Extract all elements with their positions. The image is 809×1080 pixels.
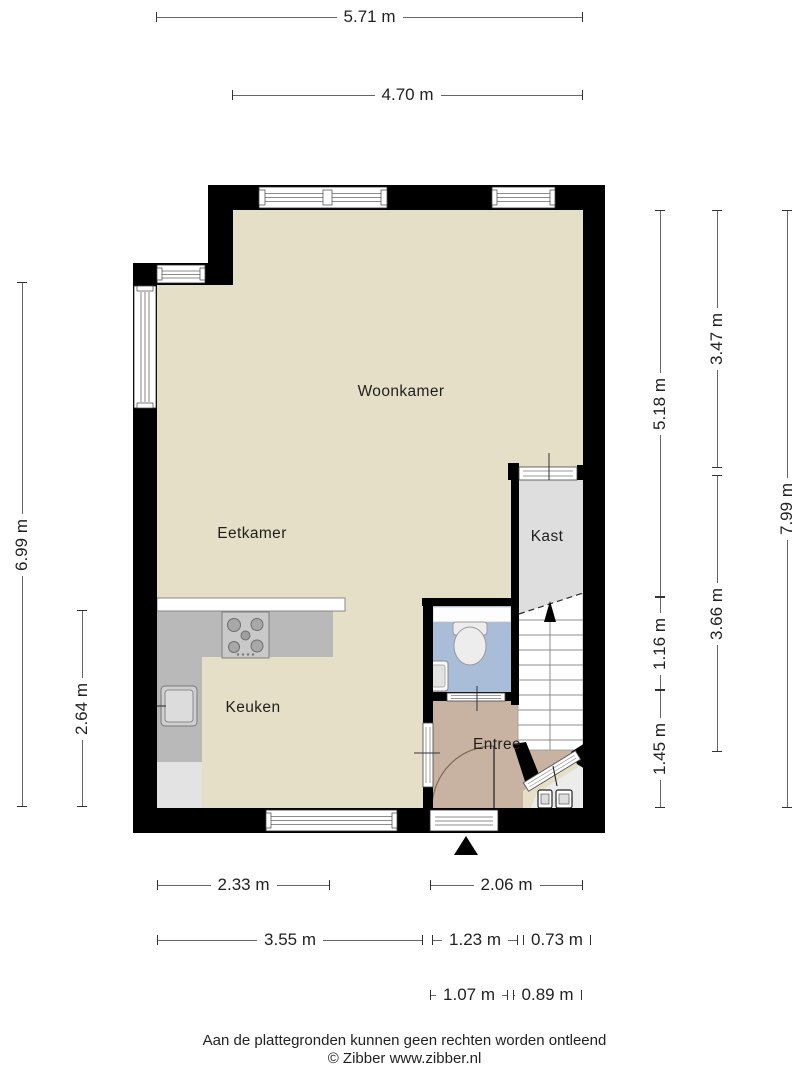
dimension-1-07-m: 1.07 m [430,986,508,1004]
dimension-1-45-m: 1.45 m [651,690,669,808]
staircase [518,480,583,750]
room-label-entree: Entree [473,736,521,754]
toilet-icon [453,622,487,665]
dimension-3-47-m: 3.47 m [708,210,726,468]
front-door-threshold [430,810,498,831]
dimension-label: 7.99 m [777,483,797,535]
dimension-1-16-m: 1.16 m [651,597,669,690]
dimension-6-99-m: 6.99 m [13,282,31,807]
dimension-4-70-m: 4.70 m [232,86,583,104]
dimension-5-18-m: 5.18 m [651,210,669,597]
dimension-label: 3.66 m [707,588,727,640]
window-step [157,265,205,283]
dimension-3-55-m: 3.55 m [157,931,423,949]
dimension-label: 0.89 m [515,985,581,1005]
dimension-1-23-m: 1.23 m [432,931,518,949]
room-label-kast: Kast [531,528,564,546]
kitchen-worktop [157,598,345,611]
dimension-label: 2.33 m [211,875,277,895]
kitchen-sink-icon [157,686,197,726]
wc-room [429,606,511,692]
dimension-label: 5.18 m [650,378,670,430]
window-left [134,286,156,408]
floor-plan-drawing [0,0,809,1080]
footer-disclaimer: Aan de plattegronden kunnen geen rechten… [0,1032,809,1049]
window-bottom [266,810,397,831]
dimension-label: 1.45 m [650,723,670,775]
dimension-0-89-m: 0.89 m [513,986,582,1004]
dimension-label: 1.23 m [442,930,508,950]
dimension-label: 6.99 m [12,519,32,571]
dimension-2-33-m: 2.33 m [157,876,330,894]
kitchen-cabinet [157,762,202,808]
dimension-5-71-m: 5.71 m [156,8,583,26]
dimension-label: 3.47 m [707,313,727,365]
floor-plan-page: Woonkamer Eetkamer Keuken Kast Entree 5.… [0,0,809,1080]
stove-icon [222,612,269,658]
room-label-eetkamer: Eetkamer [217,525,287,543]
dimension-label: 4.70 m [375,85,441,105]
room-label-woonkamer: Woonkamer [358,383,445,401]
dimension-label: 2.64 m [72,683,92,735]
dimension-2-06-m: 2.06 m [430,876,583,894]
entrance-arrow-icon [454,836,478,855]
footer-credit: © Zibber www.zibber.nl [0,1050,809,1067]
window-top-left [259,187,387,208]
dimension-label: 3.55 m [257,930,323,950]
dimension-0-73-m: 0.73 m [523,931,583,949]
wc-cistern [433,607,511,622]
dimension-label: 2.06 m [474,875,540,895]
dimension-label: 1.07 m [436,985,502,1005]
dimension-label: 5.71 m [337,7,403,27]
dimension-2-64-m: 2.64 m [73,610,91,807]
dimension-3-66-m: 3.66 m [708,475,726,752]
dimension-7-99-m: 7.99 m [778,210,796,808]
dimension-label: 0.73 m [524,930,590,950]
window-top-right [492,187,555,208]
room-label-keuken: Keuken [226,699,281,717]
dimension-label: 1.16 m [650,618,670,670]
kast-floor [519,480,583,614]
